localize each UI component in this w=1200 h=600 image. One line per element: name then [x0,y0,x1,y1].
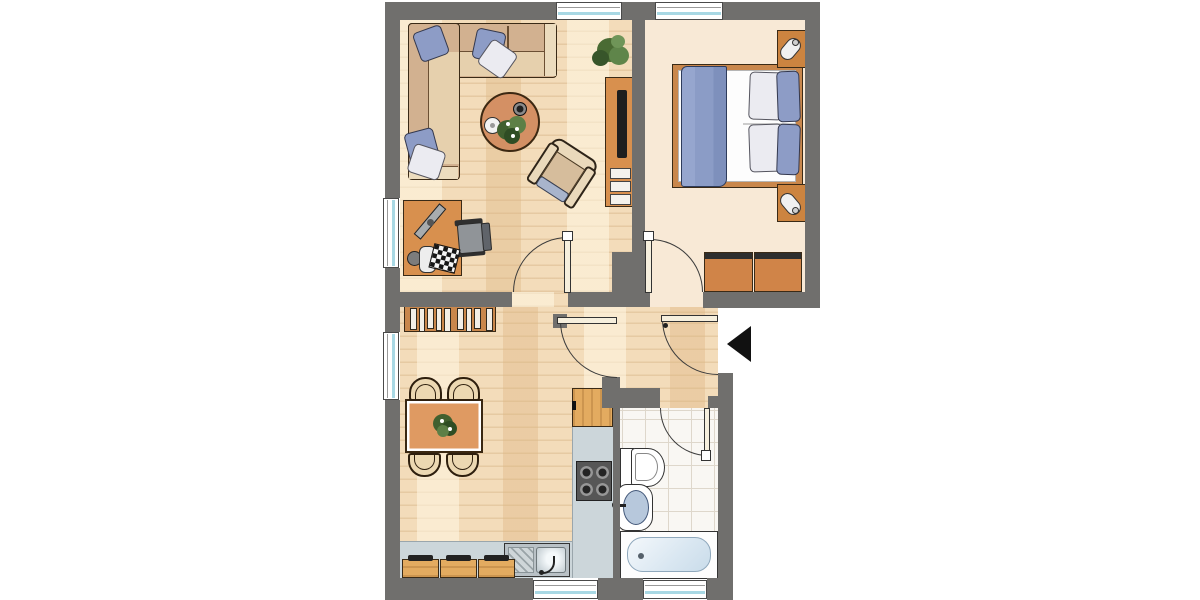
book-spine [474,308,482,329]
bookshelf [404,304,496,332]
bedside-lamp [777,190,804,218]
bathroom-door-jamb [701,450,711,461]
living-door-jamb [562,231,573,241]
dresser [704,252,753,292]
wall-living-bottom [400,292,512,307]
stove-burner [580,466,593,479]
toilet-bowl [631,448,665,487]
wall-hall-center [568,292,650,307]
kitchen-base-cabinet [440,559,477,578]
dresser [754,252,802,292]
stove [576,461,612,501]
lamp-bulb [792,207,799,214]
dresser-top-edge [705,253,752,259]
book-spine [427,308,435,329]
wall-left-c [385,400,400,600]
window-kitchen-bottom [533,580,598,599]
wall-pier-bath [602,377,620,408]
bed-pillow [776,71,801,123]
centerpiece-flower [440,419,444,423]
wall-bottom-b [598,578,643,600]
sofa-seam [507,26,509,50]
wall-right-upper [805,2,820,308]
table-plant-flower [511,134,515,138]
dining-table [405,399,483,453]
wall-bath-top-east [708,396,733,408]
dresser-top-edge [755,253,801,259]
window-bathroom-bottom [643,580,707,599]
wall-top-b [622,2,655,20]
nightstand [777,184,806,222]
book-spine [410,308,417,330]
wall-bath-left [613,408,620,578]
window-dining-left [383,332,399,400]
window-bedroom-top [655,2,723,20]
cabinet-handle [408,555,433,561]
table-plant-flower [515,127,519,131]
bathroom-door-leaf [704,408,710,456]
wall-top-a [385,2,556,20]
wall-bottom-a [385,578,533,600]
plant-leaf [611,35,625,48]
stove-burner [596,466,609,479]
book-spine [436,308,442,331]
entrance-arrow-icon [727,326,751,362]
plant-leaf [609,46,629,65]
living-door-leaf [564,236,571,293]
book-spine [486,308,493,331]
book-spine [457,308,464,330]
tv-sideboard [605,77,633,207]
bed-pillow [776,124,801,176]
cabinet-handle [572,401,576,410]
window-living-left [383,198,399,268]
window-living-top [556,2,622,20]
kitchen-door-leaf [557,317,617,324]
chair-backrest [481,222,492,251]
floor-plan [0,0,1200,600]
table-plant-flower [506,122,510,126]
stove-burner [580,483,593,496]
monitor-stand [427,219,434,226]
dining-chair [446,453,479,477]
living-door-threshold [512,292,568,307]
kitchen-base-cabinet [402,559,439,578]
centerpiece-plant [437,425,449,437]
shelf-box [610,168,631,179]
entrance-door-leaf [661,315,718,322]
lamp-bulb [792,39,799,46]
flat-tv [617,90,627,158]
bedroom-door-threshold [650,292,703,307]
dining-chair [408,453,441,477]
cabinet-handle [484,555,509,561]
dining-chair [409,377,442,401]
wall-left-b [385,268,400,332]
book-spine [466,308,472,332]
toilet-bowl-inner [635,453,658,481]
faucet-base [539,570,544,575]
wall-bath-top-west [620,388,660,408]
sofa-armrest-right [544,24,556,76]
teapot-lid [490,123,495,128]
wall-left-a [385,2,400,198]
bathtub [620,531,718,579]
wall-bedroom-bottom [703,292,820,308]
bathtub-drain [638,553,644,559]
centerpiece-flower [448,427,452,431]
book-spine [444,308,451,332]
dining-chair [447,377,480,401]
entrance-door-handle [663,323,668,328]
coffee-table [480,92,540,152]
book-spine [419,308,425,332]
kitchen-counter-column [572,427,613,578]
bedroom-door-jamb [643,231,654,241]
blue-blanket [681,66,727,187]
bedside-lamp [777,35,804,63]
shelf-box [610,194,631,205]
bedroom-door-leaf [645,236,652,293]
plant-leaf [592,50,609,66]
washbasin-bowl [623,490,649,525]
cabinet-handle [446,555,471,561]
kitchen-base-cabinet [478,559,515,578]
washbasin [617,484,653,531]
bowl [513,102,527,116]
potted-plant [592,35,632,73]
nightstand [777,30,806,68]
shelf-box [610,181,631,192]
stove-burner [596,483,609,496]
